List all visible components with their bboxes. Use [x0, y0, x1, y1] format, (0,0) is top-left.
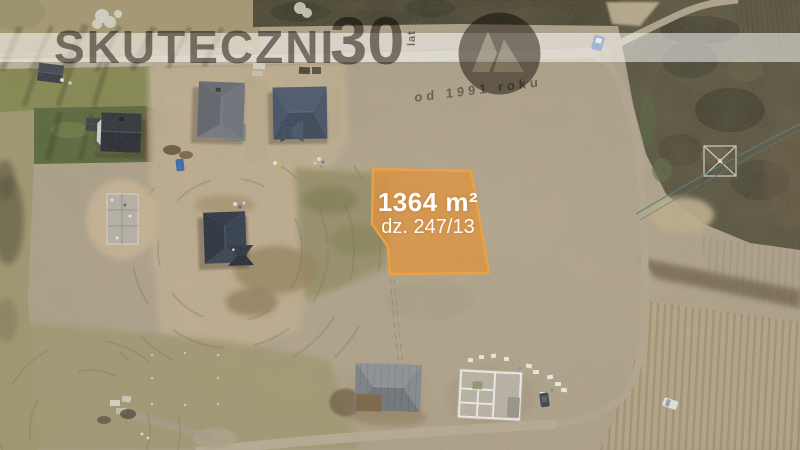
watermark-band — [0, 33, 800, 62]
real-estate-aerial-photo: 1364 m² dz. 247/13 SKUTECZNI 30 lat od 1… — [0, 0, 800, 450]
aerial-terrain — [0, 0, 800, 450]
brand-logo-icon — [458, 12, 541, 95]
photo-grain — [0, 0, 800, 450]
